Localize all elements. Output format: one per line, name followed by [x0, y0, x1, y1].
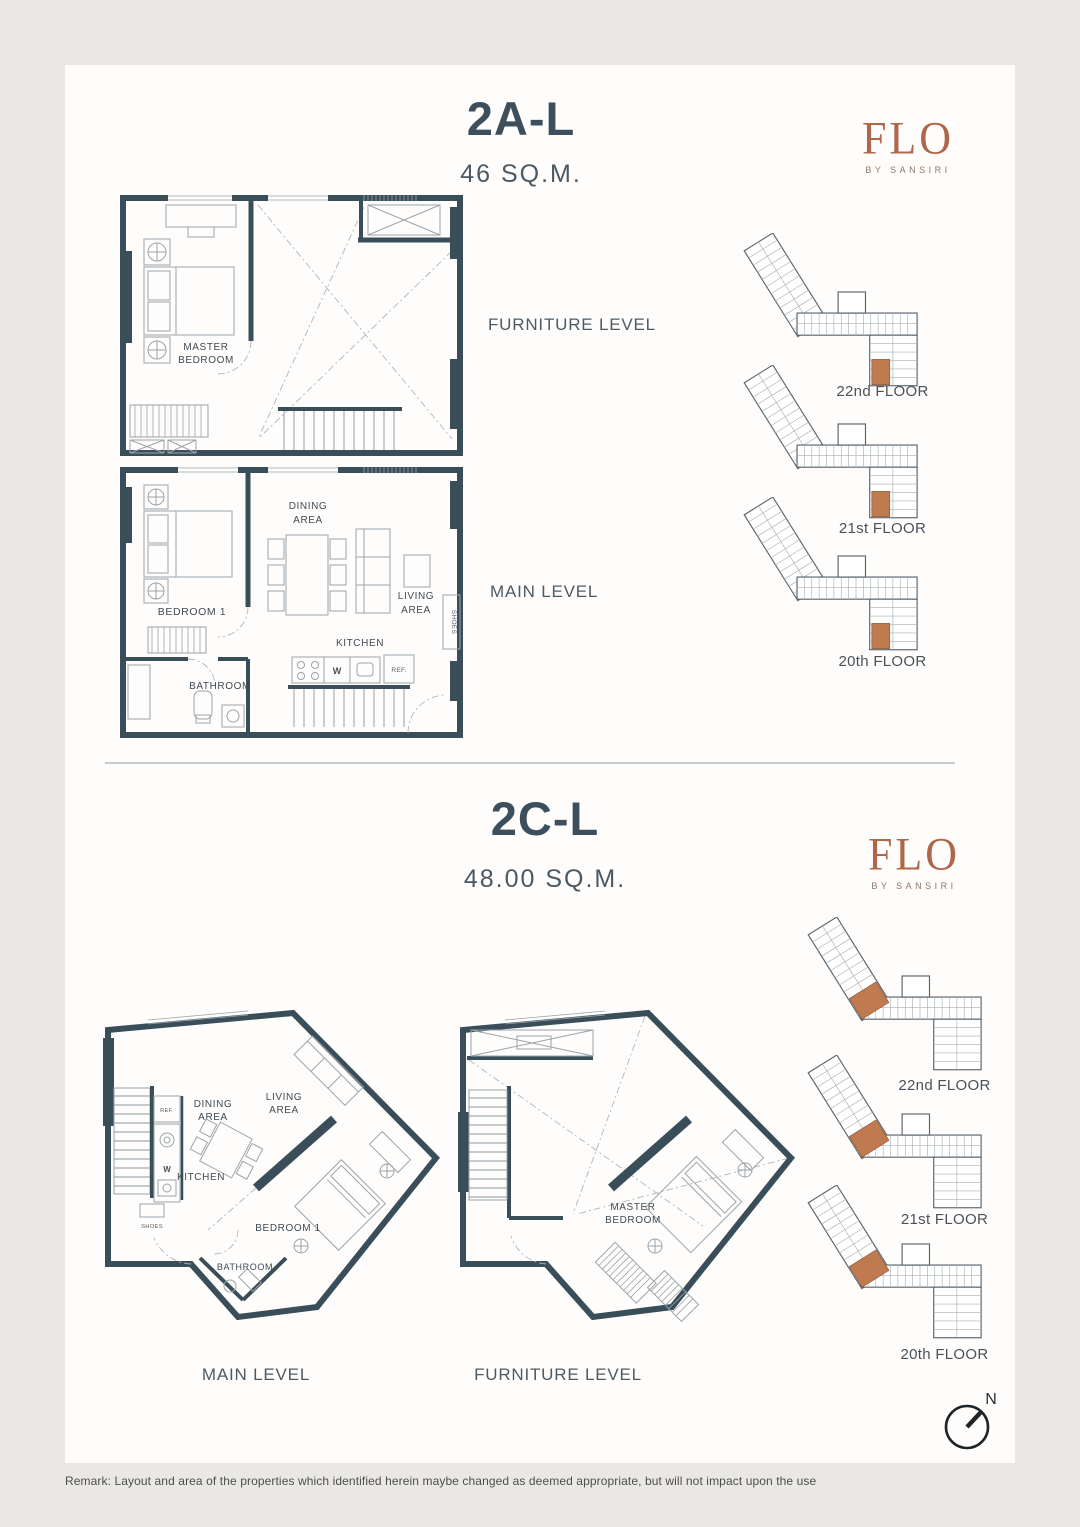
floor-plan-2a-furniture: MASTER BEDROOM [118, 193, 465, 458]
level-label-2c-furniture: FURNITURE LEVEL [443, 1365, 673, 1385]
flo-brand-tagline-2: BY SANSIRI [849, 881, 979, 891]
room-label-master-2c-1: MASTER [610, 1202, 655, 1213]
remark-text: Remark: Layout and area of the propertie… [65, 1474, 985, 1488]
level-label-2c-main: MAIN LEVEL [141, 1365, 371, 1385]
flo-brand-tagline: BY SANSIRI [843, 165, 973, 175]
floor-label-2c-20th: 20th FLOOR [827, 1346, 1062, 1363]
unit-area-2a: 46 SQ.M. [65, 160, 977, 189]
washer-label: W [333, 666, 342, 676]
flo-logo: FLO BY SANSIRI [843, 117, 973, 175]
fridge-label-2c: REF. [160, 1108, 174, 1114]
room-label-master-2c-2: BEDROOM [605, 1215, 661, 1226]
room-label-bedroom1-2c: BEDROOM 1 [255, 1223, 320, 1234]
room-label-living-1: LIVING [398, 591, 434, 602]
fridge-label: REF. [391, 667, 406, 674]
key-plan-2c-20th [805, 1185, 995, 1343]
unit-title-2a: 2A-L [65, 95, 977, 142]
room-label-master-2: BEDROOM [178, 355, 234, 366]
level-label-2a-furniture: FURNITURE LEVEL [488, 315, 656, 335]
room-label-living-2: AREA [401, 605, 431, 616]
flo-logo-2: FLO BY SANSIRI [849, 833, 979, 891]
room-label-master-1: MASTER [183, 342, 228, 353]
floor-plan-2c-main: REF. W SHOES DINING AREA LIVING AREA [88, 1000, 445, 1330]
flo-brand-wordmark-2: FLO [849, 832, 979, 878]
room-label-dining-2c-2: AREA [198, 1112, 228, 1123]
floor-label-2a-20th: 20th FLOOR [765, 653, 1000, 670]
level-label-2a-main: MAIN LEVEL [490, 582, 598, 602]
room-label-bathroom-2c: BATHROOM [217, 1262, 273, 1272]
room-label-bathroom: BATHROOM [189, 681, 251, 692]
room-label-living-2c-1: LIVING [266, 1092, 302, 1103]
content-card: 2A-L 46 SQ.M. FLO BY SANSIRI [65, 65, 1015, 1463]
room-label-dining-2: AREA [293, 515, 323, 526]
page: { "brand": { "name": "FLO", "tagline": "… [0, 0, 1080, 1527]
key-plan-2a-20th [741, 497, 931, 655]
shoes-label-2c: SHOES [141, 1224, 163, 1230]
washer-label-2c: W [163, 1165, 171, 1174]
room-label-living-2c-2: AREA [269, 1105, 299, 1116]
section-divider [105, 762, 955, 764]
shoes-label: SHOES [450, 610, 457, 635]
room-label-dining-1: DINING [289, 501, 328, 512]
floor-plan-2a-main: BEDROOM 1 BATHROOM DINING AREA LIVING AR… [118, 465, 465, 740]
flo-brand-wordmark: FLO [843, 116, 973, 162]
north-compass-icon: N [931, 1383, 1005, 1457]
room-label-kitchen-2c: KITCHEN [177, 1172, 225, 1183]
compass-north-label: N [985, 1391, 997, 1408]
room-label-dining-2c-1: DINING [194, 1099, 233, 1110]
room-label-bedroom1: BEDROOM 1 [158, 606, 226, 618]
room-label-kitchen: KITCHEN [336, 638, 384, 649]
key-plan-2c-22nd [805, 917, 995, 1075]
floor-plan-2c-furniture: MASTER BEDROOM [445, 1000, 800, 1330]
